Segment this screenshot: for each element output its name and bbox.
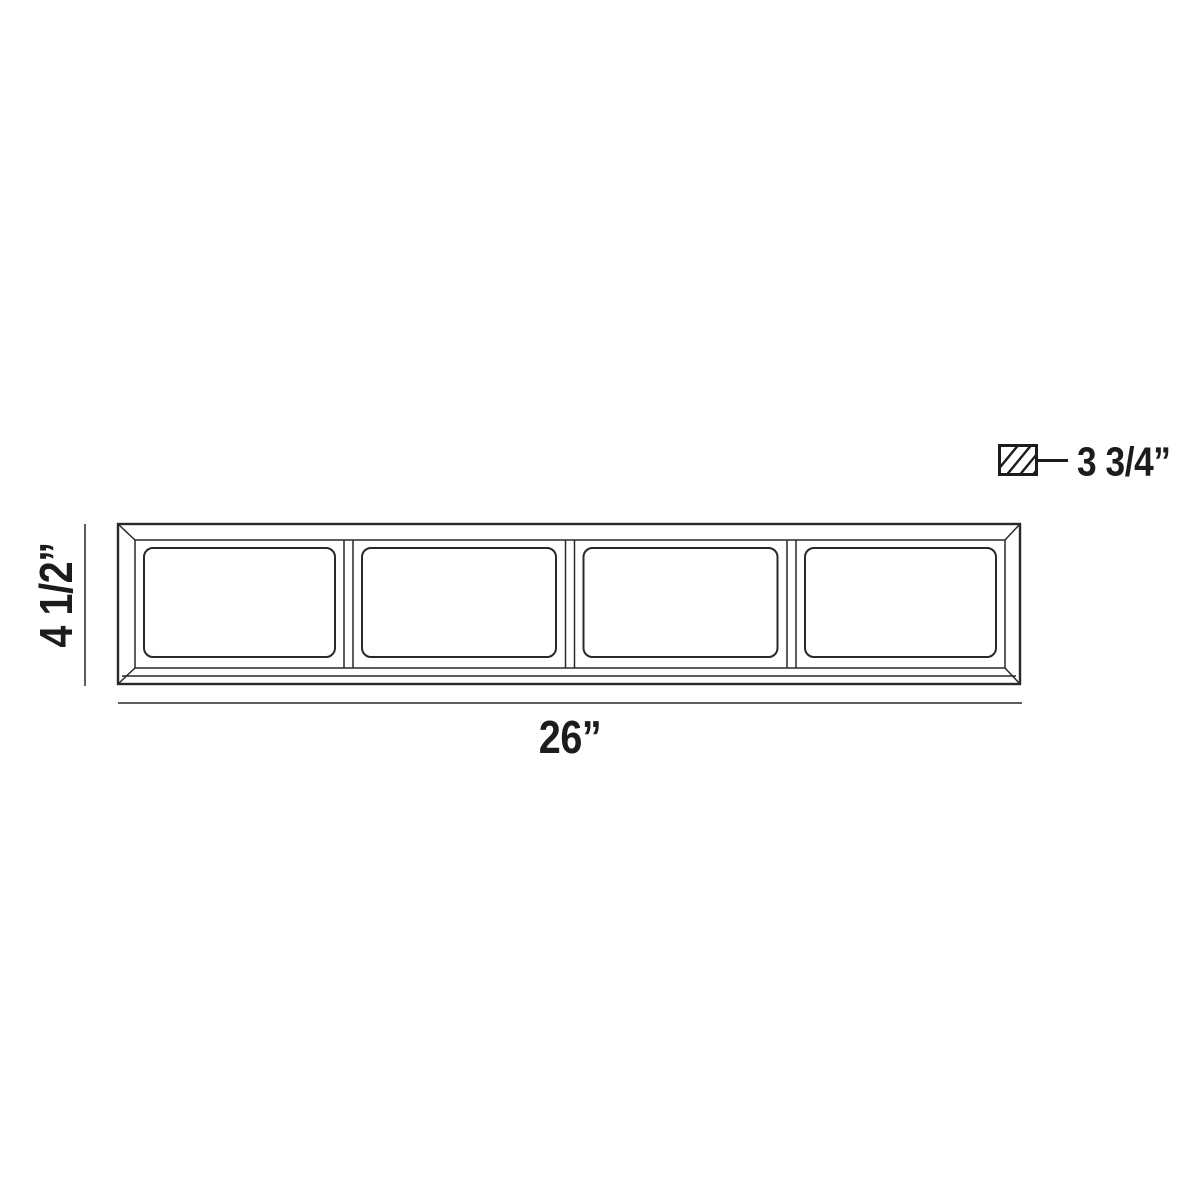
depth-dimension-label: 3 3/4” [1077, 442, 1170, 483]
diagram-canvas: 4 1/2” 26” 3 3/4” [0, 0, 1200, 1200]
light-panel-3 [584, 548, 778, 657]
light-panel-2 [362, 548, 556, 657]
height-dimension-label: 4 1/2” [33, 542, 79, 647]
light-panel-1 [144, 548, 335, 657]
fixture-drawing [0, 0, 1200, 1200]
hatched-rectangle-icon [998, 444, 1072, 478]
width-dimension-label: 26” [539, 714, 601, 760]
light-panel-4 [805, 548, 996, 657]
